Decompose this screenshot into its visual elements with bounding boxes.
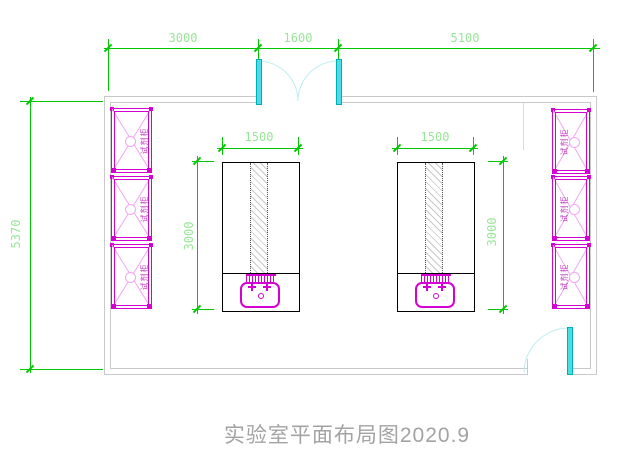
dim-label-bench-left-height: 3000 — [182, 206, 196, 266]
reagent-cabinet: 试剂柜 — [552, 109, 590, 174]
faucet-icon — [441, 284, 443, 291]
floor-plan-canvas: 3000 1600 5100 5370 1500 3000 1500 3000 … — [0, 0, 619, 469]
dim-label-bench-right-width: 1500 — [405, 130, 465, 144]
faucet-icon — [251, 284, 253, 291]
cabinet-label: 试剂柜 — [559, 128, 570, 155]
cabinet-label: 试剂柜 — [559, 195, 570, 222]
dim-extension-line — [20, 369, 103, 370]
dim-line-top — [104, 48, 600, 49]
sink-icon — [415, 282, 455, 308]
reagent-cabinet: 试剂柜 — [552, 176, 590, 241]
drain-circle — [258, 293, 264, 299]
dim-line-bench-right-height — [503, 156, 504, 314]
dim-label-top-middle: 1600 — [268, 31, 328, 45]
dim-label-bench-left-width: 1500 — [229, 130, 289, 144]
dim-extension-line — [20, 101, 103, 102]
cabinet-knob-circle — [569, 204, 580, 215]
drain-circle — [433, 293, 439, 299]
cabinet-label: 试剂柜 — [139, 263, 150, 290]
dim-line-bench-right-width — [392, 148, 478, 149]
wall-detail-line — [523, 103, 524, 150]
faucet-icon — [266, 284, 268, 291]
dim-label-bench-right-height: 3000 — [485, 202, 499, 262]
cabinet-knob-circle — [125, 272, 136, 283]
cabinet-knob-circle — [125, 136, 136, 147]
sink-icon — [240, 282, 280, 308]
reagent-cabinet: 试剂柜 — [552, 244, 590, 309]
lab-bench-left — [222, 162, 300, 312]
reagent-cabinet: 试剂柜 — [111, 108, 152, 173]
dim-label-top-right: 5100 — [435, 31, 495, 45]
drawing-title: 实验室平面布局图2020.9 — [222, 419, 472, 449]
bottom-door-leaf — [567, 327, 573, 375]
cabinet-label: 试剂柜 — [139, 195, 150, 222]
dim-extension-line — [258, 39, 259, 60]
bench-hatch-strip — [425, 163, 443, 273]
reagent-cabinet: 试剂柜 — [111, 244, 152, 309]
lab-bench-right — [397, 162, 475, 312]
dim-line-bench-left-height — [197, 156, 198, 314]
door-jamb-cap — [527, 359, 528, 374]
dim-label-left-wall: 5370 — [9, 204, 23, 264]
double-door-leaf-left — [256, 59, 262, 105]
reagent-cabinet: 试剂柜 — [111, 176, 152, 241]
dim-extension-line — [338, 39, 339, 60]
dim-line-bench-left-width — [217, 148, 303, 149]
bench-hatch-strip — [250, 163, 268, 273]
bottom-door-opening — [528, 359, 571, 375]
cabinet-knob-circle — [569, 137, 580, 148]
faucet-icon — [426, 284, 428, 291]
dim-extension-line — [488, 309, 508, 310]
dim-line-left-wall — [30, 97, 31, 373]
cabinet-knob-circle — [125, 204, 136, 215]
cabinet-label: 试剂柜 — [139, 127, 150, 154]
top-door-opening — [256, 94, 340, 106]
double-door-leaf-right — [336, 59, 342, 105]
cabinet-knob-circle — [569, 272, 580, 283]
dim-extension-line — [488, 161, 508, 162]
dim-label-top-left: 3000 — [153, 31, 213, 45]
cabinet-label: 试剂柜 — [559, 263, 570, 290]
